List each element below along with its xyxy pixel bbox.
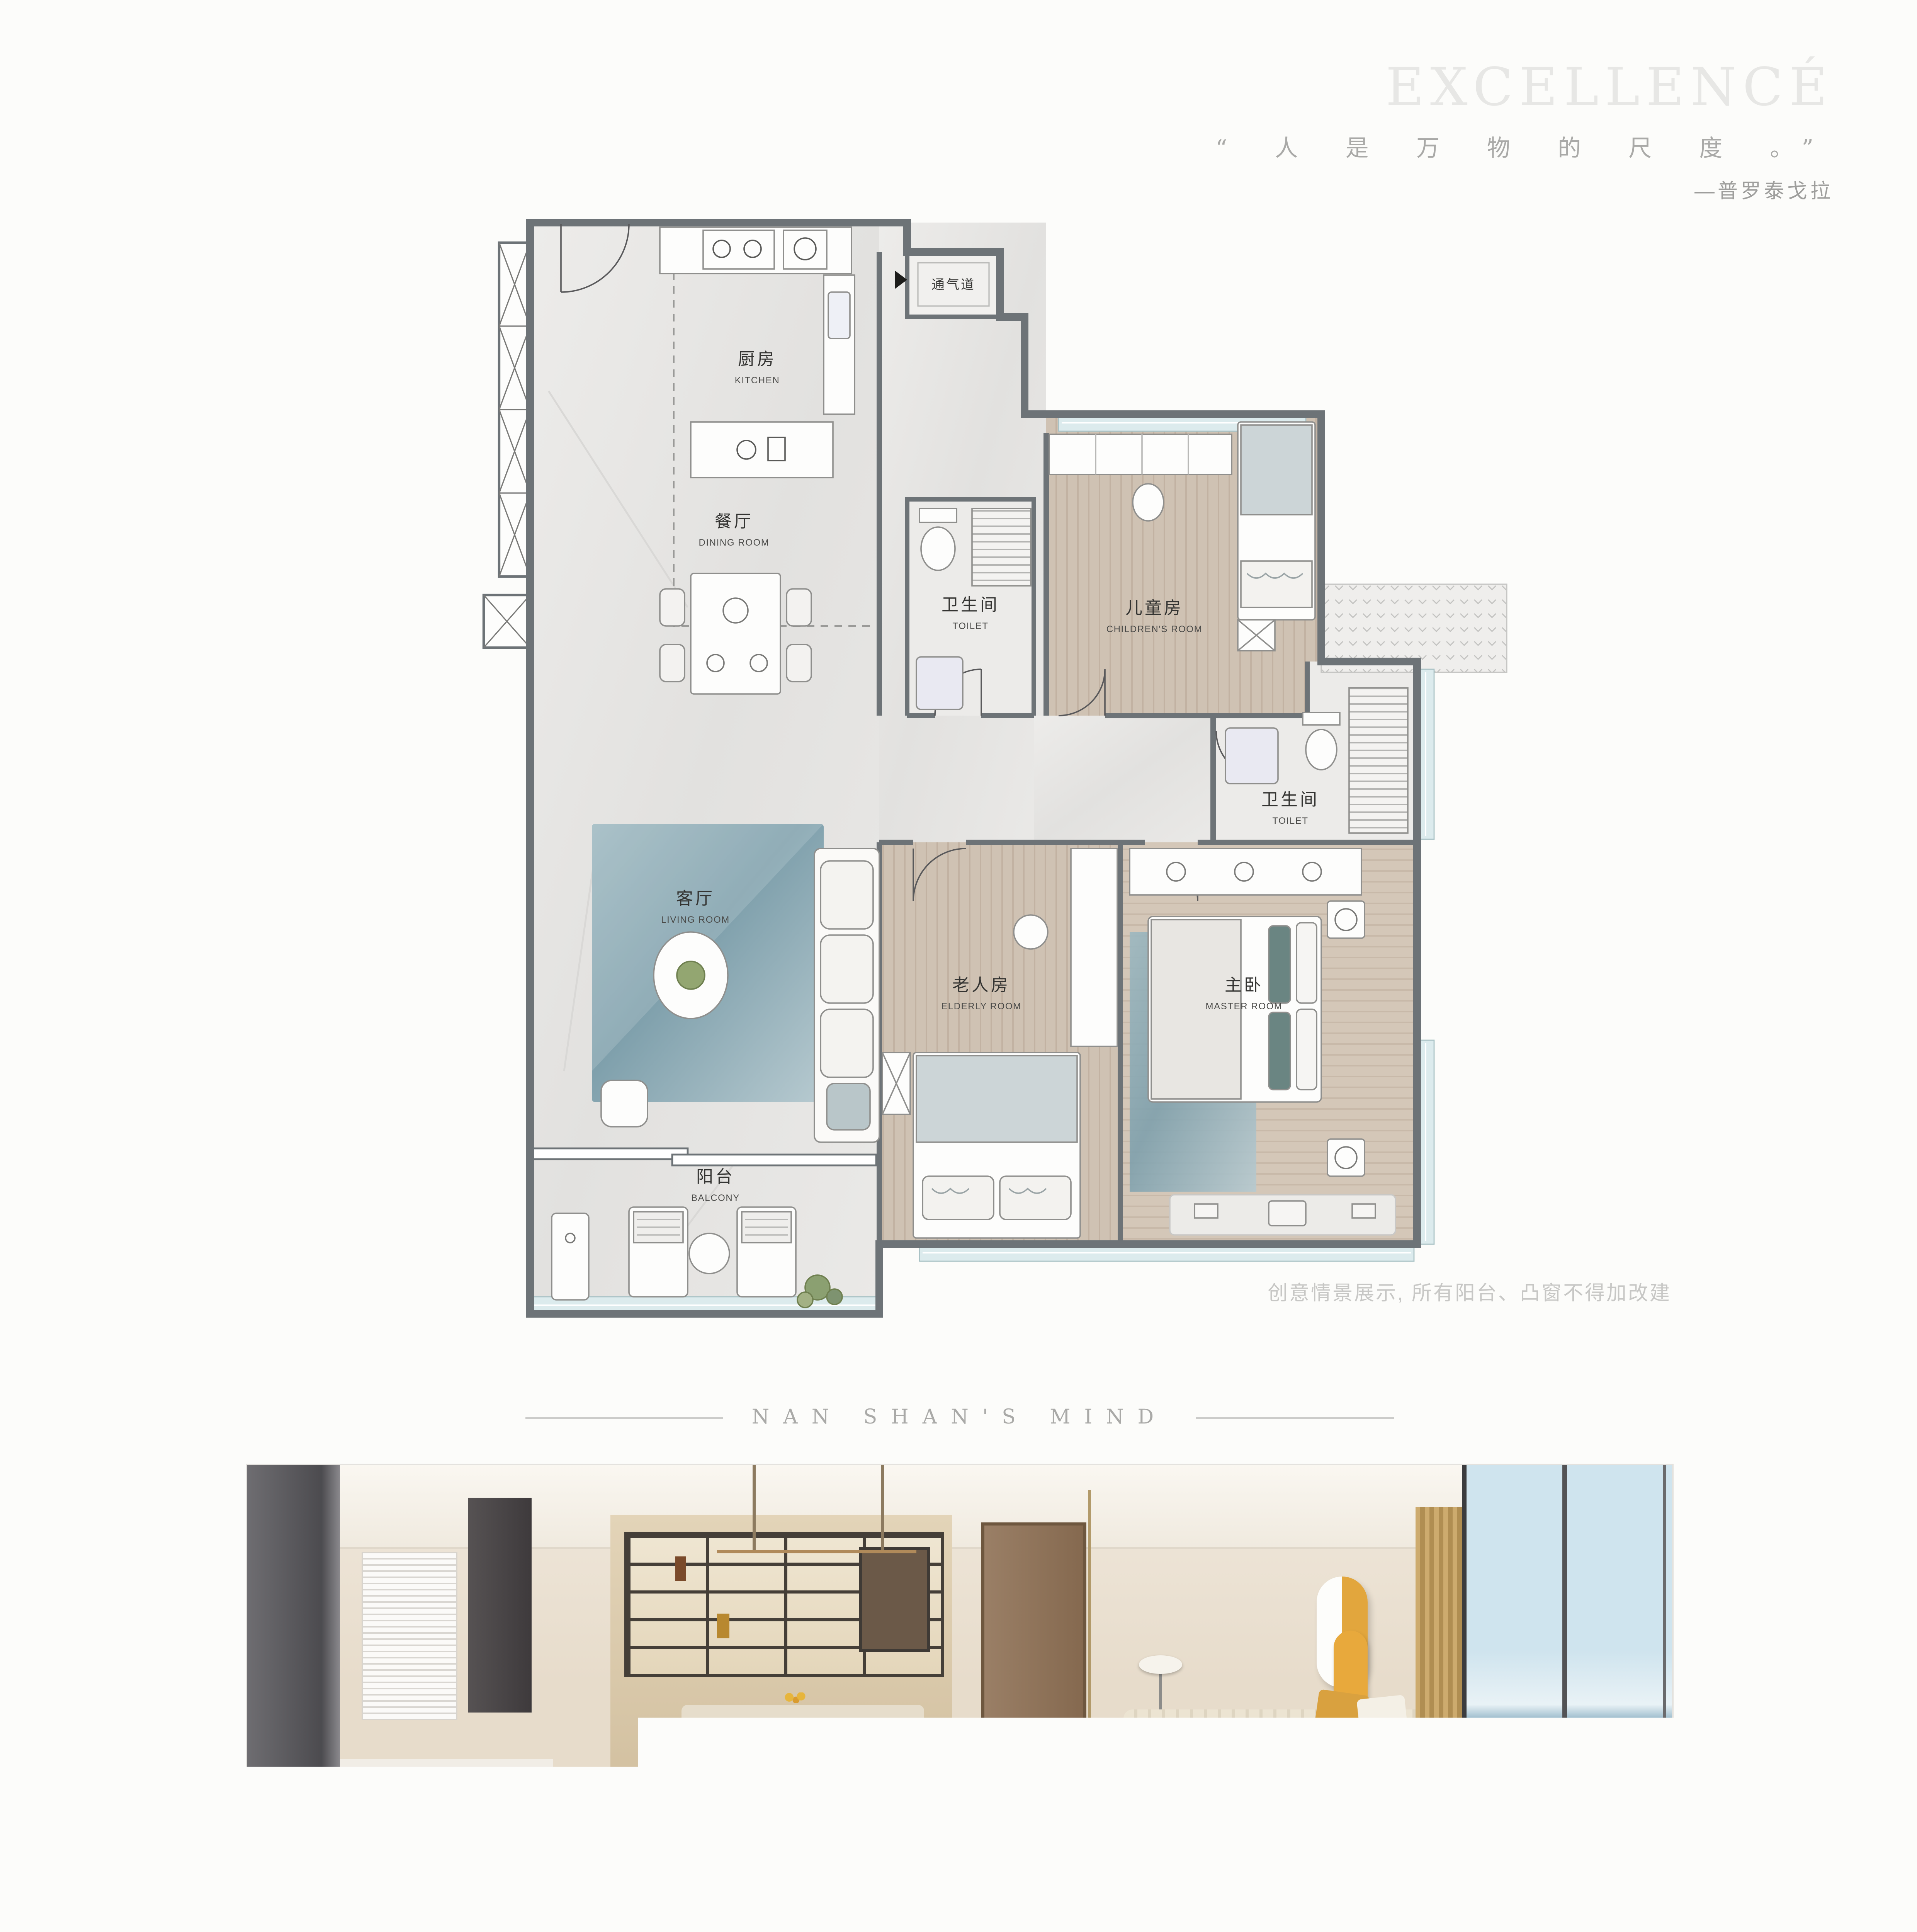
divider-rule-right: [1195, 1417, 1393, 1419]
room-label-toilet-right-cn: 卫生间: [1261, 790, 1319, 809]
room-label-balcony-cn: 阳台: [696, 1167, 735, 1186]
photo-curtain: [1416, 1507, 1461, 1775]
brand-title: EXCELLENCÉ: [1215, 62, 1834, 117]
room-label-toilet-upper-en: TOILET: [952, 621, 988, 631]
photo-kitchen-blind: [361, 1552, 457, 1720]
kitchen-island: [691, 422, 833, 478]
room-label-master-en: MASTER ROOM: [1206, 1001, 1283, 1012]
nightstand-1: [1327, 901, 1365, 938]
room-label-elderly-cn: 老人房: [952, 976, 1010, 995]
room-label-living-en: LIVING ROOM: [661, 915, 730, 925]
shower-right: [1349, 688, 1408, 833]
room-label-elderly-en: ELDERLY ROOM: [941, 1001, 1021, 1012]
photo-glass-partition: [247, 1465, 340, 1878]
photo-balcony-rail: [1461, 1762, 1672, 1765]
room-label-dining-cn: 餐厅: [715, 512, 753, 531]
photo-pendant-bar: [717, 1550, 917, 1553]
bay-window: [484, 243, 530, 648]
nightstand-2: [1327, 1139, 1365, 1176]
photo-caption: 示意图, 最终效果以政府批复为准: [1061, 1858, 1672, 1878]
photo-lamp-shade: [1139, 1655, 1182, 1673]
photo-window-mullion: [1662, 1465, 1666, 1878]
toilet-upper-bowl: [921, 527, 955, 570]
vent-label: 通气道: [931, 277, 975, 292]
side-table: [601, 1080, 647, 1127]
room-label-balcony-en: BALCONY: [691, 1193, 740, 1203]
photo-oven: [368, 1779, 454, 1828]
photo-pendant-wire: [881, 1465, 884, 1552]
plant: [677, 961, 705, 989]
room-label-kitchen-en: KITCHEN: [735, 375, 780, 386]
toilet-right-bowl: [1306, 730, 1337, 770]
master-wardrobe: [1130, 849, 1361, 895]
children-shelf: [1049, 434, 1232, 474]
photo-books: [1287, 1781, 1330, 1798]
photo-pillow-white: [1357, 1694, 1409, 1736]
interior-photo: 示意图, 最终效果以政府批复为准: [247, 1465, 1672, 1878]
dining-table: [691, 573, 780, 694]
photo-gold-trim: [1088, 1490, 1092, 1775]
shower-upper: [972, 509, 1031, 586]
vent-duct: 通气道: [895, 252, 1000, 317]
photo-window-mullion: [1562, 1465, 1566, 1878]
photo-flowers: [777, 1692, 812, 1703]
photo-kitchen-cabinet: [468, 1498, 532, 1713]
photo-bottle: [717, 1614, 729, 1638]
room-label-dining-en: DINING ROOM: [699, 537, 770, 548]
room-label-living-cn: 客厅: [676, 889, 715, 908]
room-label-kitchen-cn: 厨房: [738, 350, 777, 369]
balcony-table: [689, 1233, 729, 1274]
photo-kitchen-counter: [340, 1758, 554, 1775]
photo-cream-chair: [810, 1738, 879, 1818]
room-label-toilet-upper-cn: 卫生间: [942, 595, 999, 614]
balcony-basin: [552, 1213, 589, 1300]
section-divider: NAN SHAN'S MIND: [247, 1406, 1672, 1430]
room-label-children-cn: 儿童房: [1125, 599, 1183, 617]
divider-rule-left: [526, 1417, 724, 1419]
kitchen-sink: [828, 292, 850, 338]
photo-orange-chair: [696, 1733, 762, 1812]
room-label-children-en: CHILDREN'S ROOM: [1106, 624, 1203, 634]
photo-bottle: [675, 1556, 686, 1581]
elderly-stool: [1014, 915, 1048, 949]
photo-pendant-wire: [753, 1465, 756, 1552]
balcony-slider: [533, 1148, 688, 1159]
children-chair: [1133, 484, 1164, 521]
room-label-master-cn: 主卧: [1225, 976, 1263, 995]
brand-block: EXCELLENCÉ “ 人 是 万 物 的 尺 度 。” —普罗泰戈拉: [1215, 62, 1834, 204]
brand-quote: “ 人 是 万 物 的 尺 度 。”: [1215, 131, 1834, 163]
photo-shelf-art: [860, 1548, 930, 1653]
photo-wood-door: [981, 1523, 1087, 1775]
basin-right: [1225, 728, 1278, 784]
basin-upper: [916, 657, 963, 709]
brand-attribution: —普罗泰戈拉: [1215, 174, 1834, 204]
divider-text: NAN SHAN'S MIND: [752, 1406, 1168, 1430]
plan-note: 创意情景展示, 所有阳台、凸窗不得加改建: [1268, 1277, 1671, 1306]
photo-yellow-stool: [1451, 1779, 1497, 1828]
poster-page: EXCELLENCÉ “ 人 是 万 物 的 尺 度 。” —普罗泰戈拉: [0, 0, 1917, 1932]
photo-table-leg: [782, 1738, 784, 1775]
floor-plan: 通气道: [456, 206, 1576, 1337]
elderly-wardrobe: [1071, 849, 1117, 1046]
room-label-toilet-right-en: TOILET: [1272, 816, 1308, 826]
